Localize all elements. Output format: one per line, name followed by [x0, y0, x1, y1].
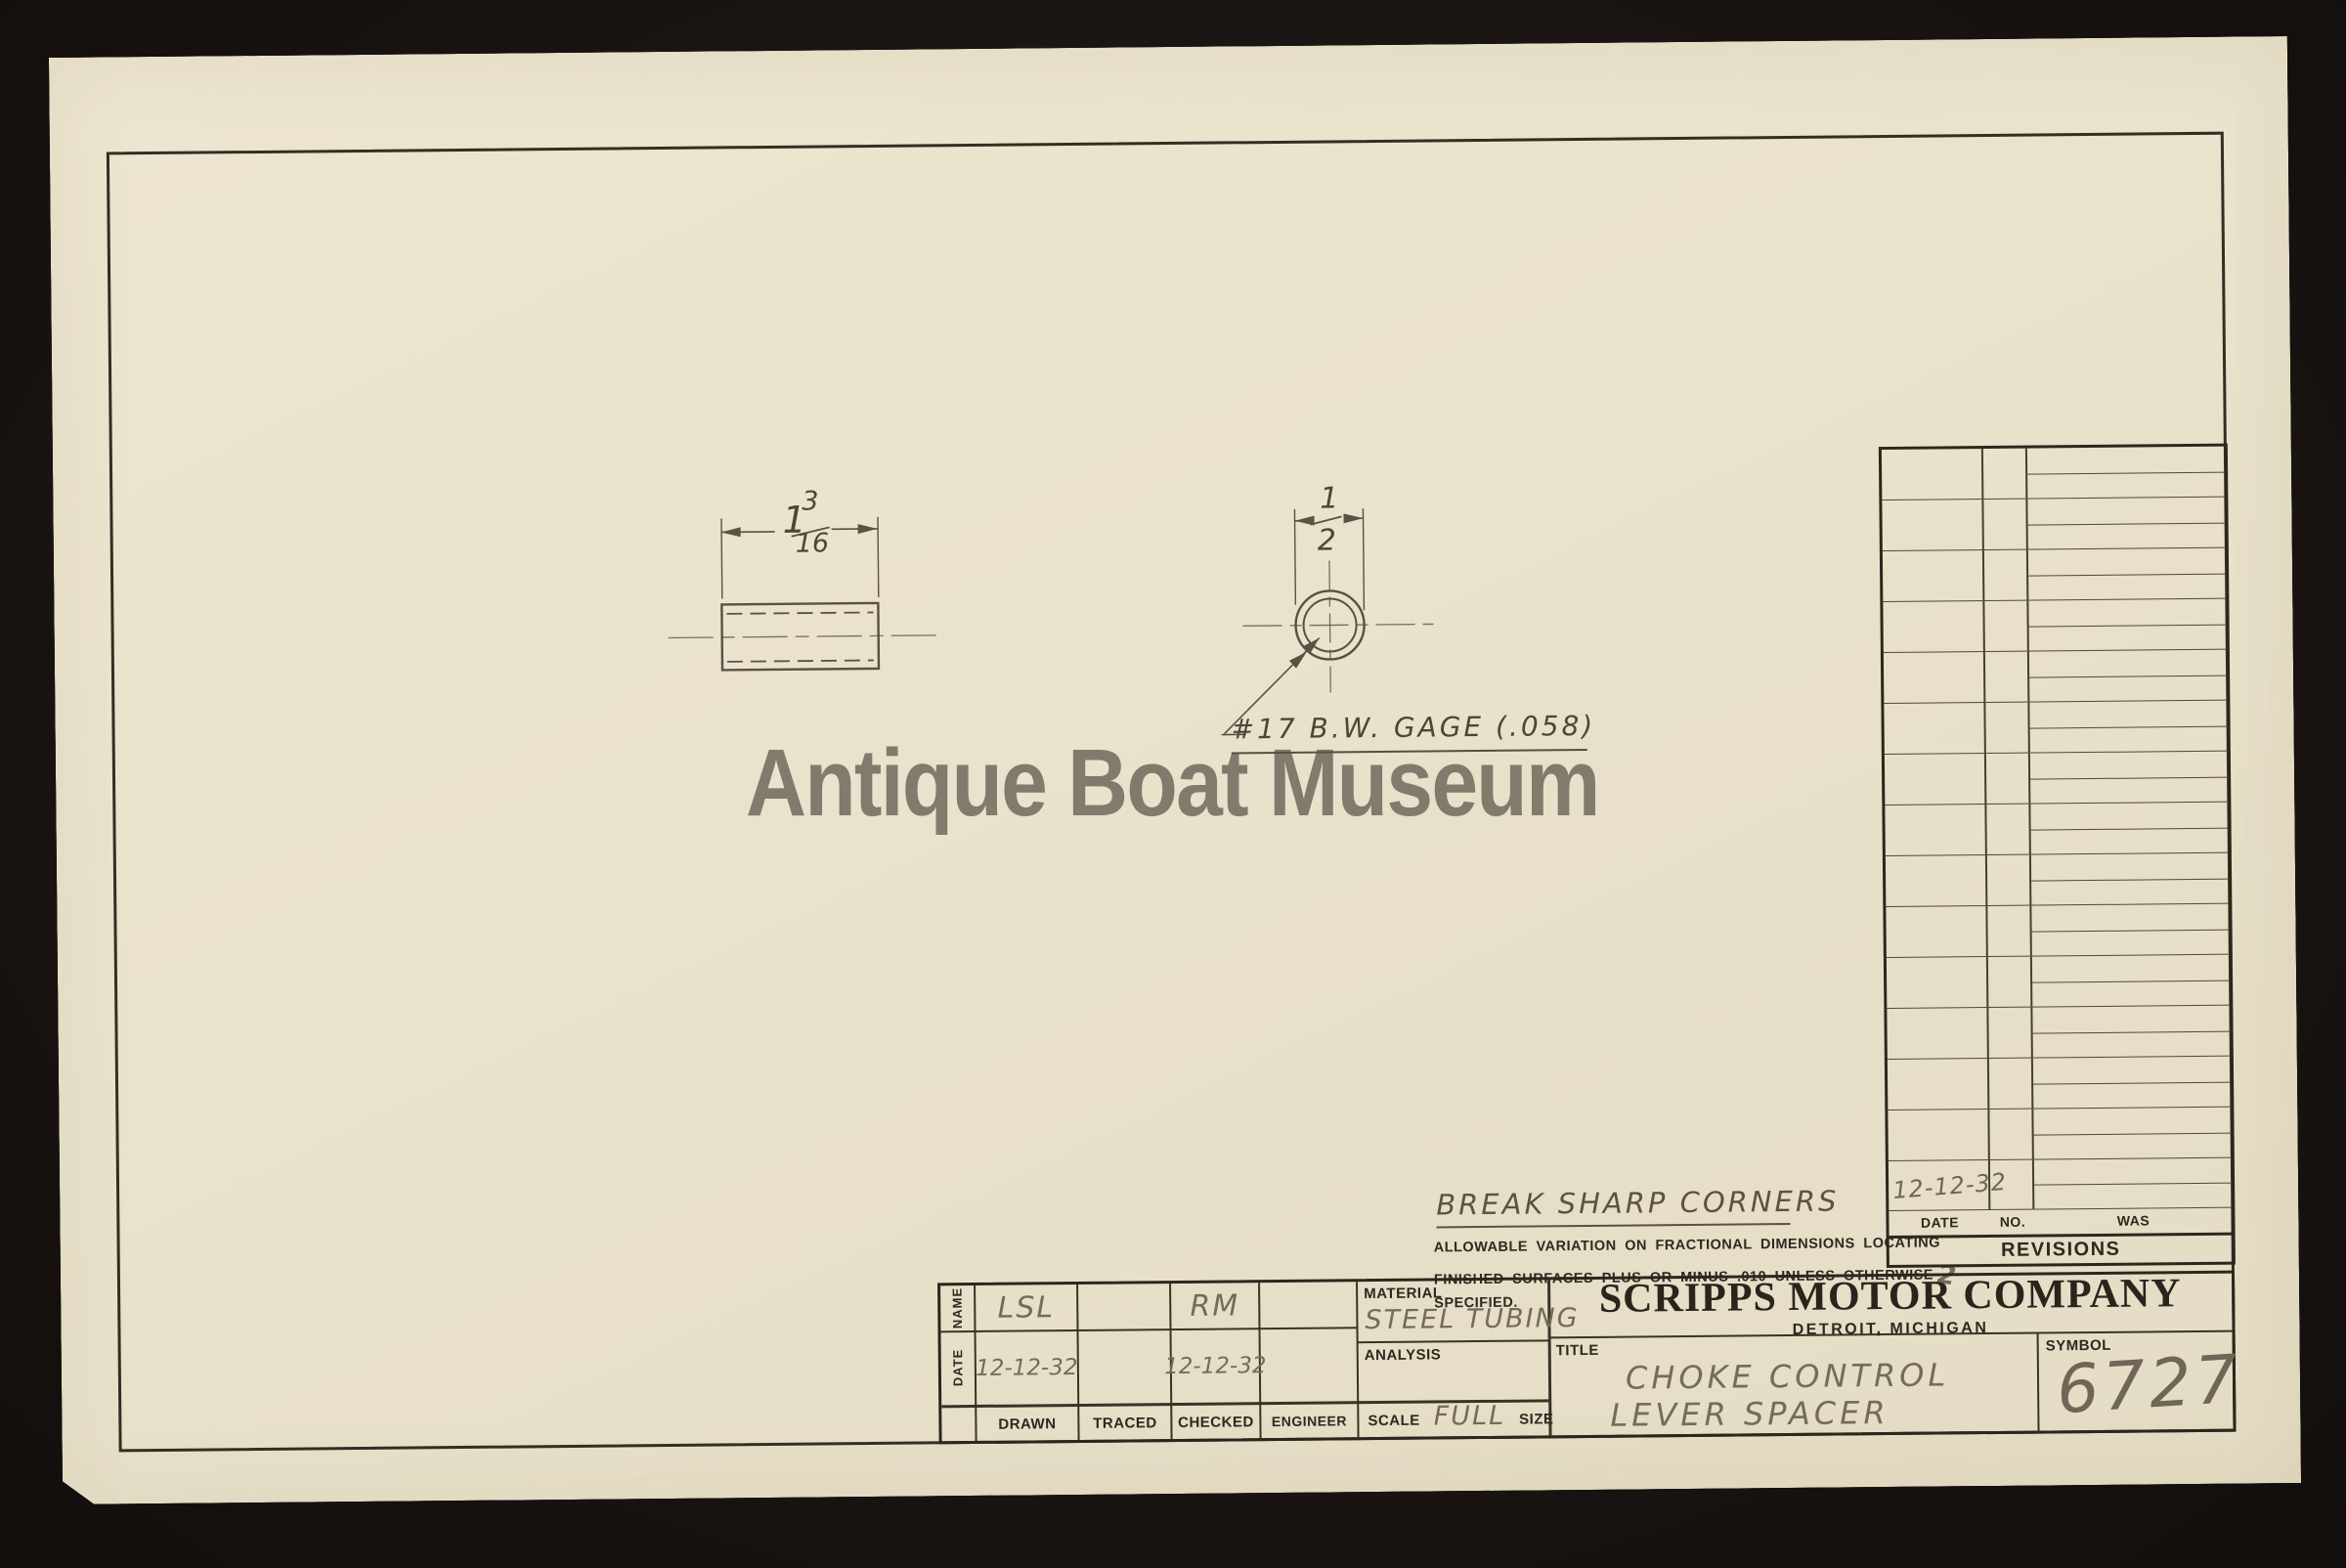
revision-row-empty	[1887, 1006, 2230, 1060]
photo-background: 1 3 16 1 2 #17 B.W. GAGE (.058) BREAK SH…	[0, 0, 2346, 1568]
revisions-empty-rows	[1882, 447, 2232, 1161]
checked-label: CHECKED	[1172, 1405, 1259, 1439]
traced-name	[1078, 1284, 1169, 1329]
name-row-label: NAME	[940, 1285, 974, 1330]
material-cell: MATERIAL STEEL TUBING	[1357, 1280, 1548, 1341]
break-corners-note: BREAK SHARP CORNERS	[1436, 1185, 1790, 1228]
engineer-date	[1260, 1328, 1357, 1402]
checked-date: 12-12-32	[1172, 1329, 1260, 1403]
revision-row-empty	[1883, 599, 2226, 653]
revision-row-empty	[1887, 955, 2230, 1009]
revision-row-empty	[1885, 803, 2228, 856]
column-header-date: DATE	[1889, 1214, 1990, 1231]
drawn-name: LSL	[976, 1285, 1076, 1330]
drawn-label: DRAWN	[977, 1407, 1077, 1441]
revision-row-empty	[1882, 447, 2225, 501]
column-header-was: WAS	[2034, 1212, 2232, 1230]
engineer-label: ENGINEER	[1261, 1404, 1357, 1438]
revisions-table: 12-12-32 DATE NO. WAS REVISIONS	[1879, 444, 2236, 1268]
analysis-label: ANALYSIS	[1365, 1346, 1442, 1364]
revision-row-empty	[1888, 1057, 2231, 1111]
column-header-no: NO.	[1990, 1214, 2034, 1230]
title-block: NAME DATE LSL RM 12-12-32 12-12-32 DRAWN…	[937, 1271, 2237, 1445]
revision-row-empty	[1888, 1108, 2231, 1161]
engineer-name	[1260, 1282, 1356, 1328]
drawn-date: 12-12-32	[977, 1331, 1078, 1405]
dimension-denominator: 16	[796, 528, 830, 558]
dimension-denominator: 2	[1318, 523, 1336, 557]
company-name: SCRIPPS MOTOR COMPANY	[1599, 1270, 2182, 1323]
revision-row-empty	[1882, 498, 2225, 551]
traced-date	[1079, 1330, 1171, 1404]
material-label: MATERIAL	[1364, 1285, 1443, 1302]
scale-value: FULL	[1434, 1400, 1506, 1431]
size-label: SIZE	[1519, 1411, 1554, 1427]
company-header: SCRIPPS MOTOR COMPANY DETROIT, MICHIGAN	[1548, 1274, 2233, 1337]
drawing-title-line1: CHOKE CONTROL	[1626, 1356, 1950, 1396]
drawing-title-line2: LEVER SPACER	[1610, 1394, 1890, 1434]
symbol-value: 6727	[2055, 1341, 2244, 1430]
title-label: TITLE	[1556, 1342, 1599, 1359]
analysis-cell: ANALYSIS	[1358, 1341, 1549, 1401]
date-row-label: DATE	[940, 1330, 975, 1405]
material-value: STEEL TUBING	[1365, 1303, 1580, 1335]
revision-row-dated: 12-12-32	[1889, 1158, 2232, 1211]
revision-row-empty	[1884, 650, 2227, 704]
scale-label: SCALE	[1368, 1412, 1420, 1429]
dimension-numerator: 1	[1320, 481, 1338, 515]
revision-row-empty	[1885, 752, 2228, 806]
revision-row-empty	[1883, 548, 2226, 602]
scale-cell: SCALE FULL SIZE	[1358, 1402, 1548, 1437]
revision-row-empty	[1886, 904, 2229, 958]
dimension-numerator: 3	[802, 486, 818, 516]
symbol-cell: SYMBOL 6727	[2039, 1332, 2234, 1431]
watermark: Antique Boat Museum	[746, 735, 1599, 830]
title-cell: TITLE CHOKE CONTROL LEVER SPACER	[1549, 1334, 2038, 1436]
traced-label: TRACED	[1079, 1406, 1170, 1440]
revision-row-empty	[1886, 853, 2229, 907]
revision-row-empty	[1884, 701, 2227, 755]
revisions-column-headers: DATE NO. WAS	[1889, 1208, 2232, 1239]
revisions-title: REVISIONS	[1890, 1235, 2233, 1265]
checked-name: RM	[1171, 1283, 1258, 1328]
